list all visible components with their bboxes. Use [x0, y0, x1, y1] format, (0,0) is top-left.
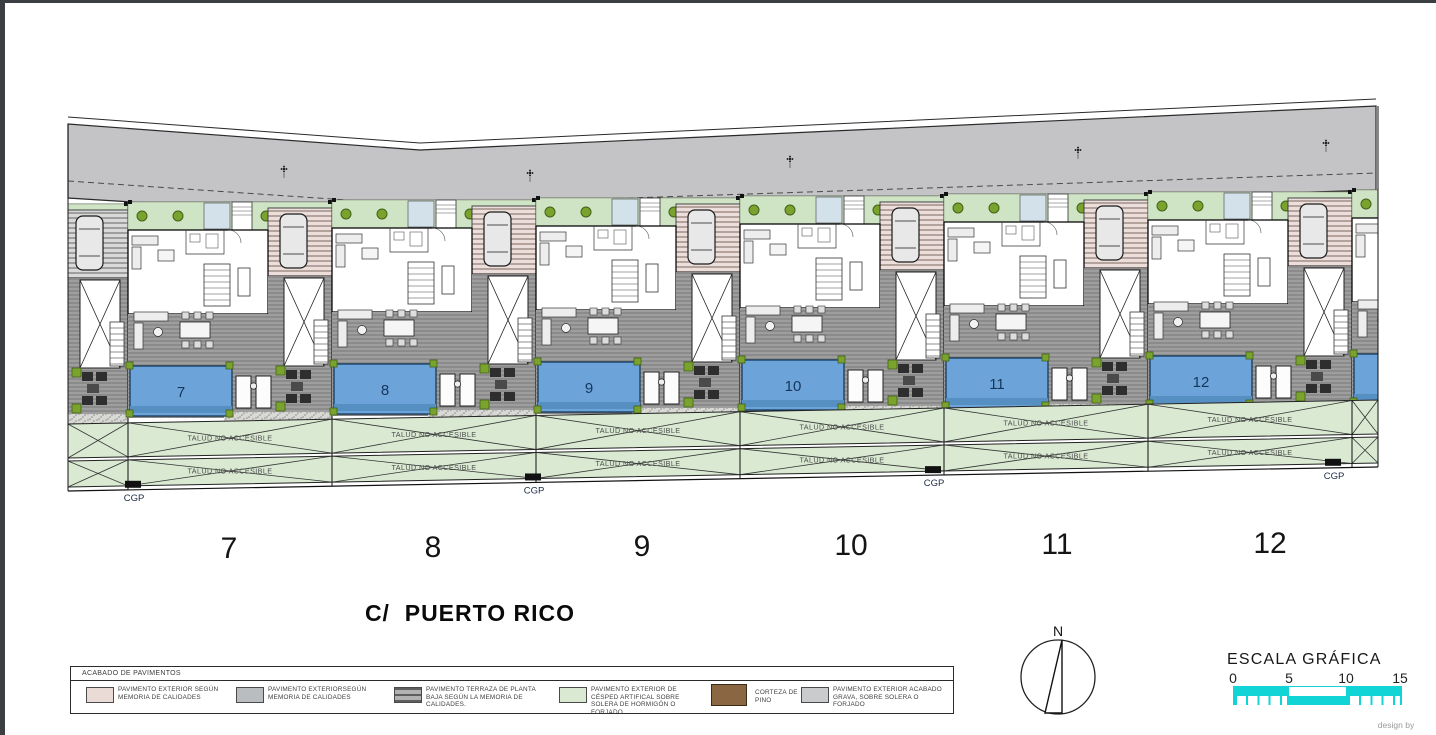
stairs [1224, 254, 1250, 296]
pool-number: 11 [989, 376, 1005, 393]
kitchen-island [1258, 258, 1270, 286]
outdoor-dining-set [1404, 300, 1436, 336]
bush [377, 209, 387, 219]
legend-box: ACABADO DE PAVIMENTOS PAVIMENTO EXTERIOR… [70, 666, 954, 714]
sofa [336, 234, 362, 243]
plot-number-8: 8 [425, 531, 442, 565]
side-stairs [722, 316, 736, 360]
coffee-table [1178, 240, 1194, 251]
stairs [204, 264, 230, 306]
scale-bar-segment [1289, 686, 1346, 696]
scale-tick-15: 15 [1392, 670, 1408, 686]
plot-10: 10 [738, 194, 944, 422]
coffee-table [1382, 238, 1398, 249]
planter [22, 412, 29, 419]
bush [341, 209, 351, 219]
planter [226, 362, 233, 369]
planter [534, 358, 541, 365]
plot-number-7: 7 [221, 532, 238, 566]
talud-label: TALUD NO ACCESIBLE [800, 422, 885, 431]
bush [785, 205, 795, 215]
talud-label: TALUD NO ACCESIBLE [1004, 452, 1089, 461]
pool-11: 11 [946, 358, 1048, 408]
sun-loungers [32, 378, 67, 410]
car [1096, 206, 1123, 260]
talud-label: TALUD NO ACCESIBLE [188, 434, 273, 443]
entry-porch [612, 199, 638, 225]
entry-porch [408, 201, 434, 227]
compass-needle [1045, 640, 1062, 713]
bush [545, 207, 555, 217]
north-label: N [1053, 623, 1063, 639]
bush [137, 211, 147, 221]
planter [1246, 352, 1253, 359]
north-arrow: N [1016, 620, 1100, 720]
entry-walkway [232, 202, 252, 230]
planter [738, 404, 745, 411]
site-plan-drawing: 789101112TALUD NO ACCESIBLETALUD NO ACCE… [0, 0, 1436, 735]
talud-label: TALUD NO ACCESIBLE [1208, 448, 1293, 457]
window-edge-left [0, 0, 5, 735]
legend-item-label: PAVIMENTO EXTERIORSEGÚN MEMORIA DE CALID… [268, 686, 382, 701]
pool-number: 12 [1193, 374, 1210, 391]
planter [634, 406, 641, 413]
house-floorplan [536, 226, 676, 310]
sofa [1152, 226, 1178, 235]
pool-number: 10 [785, 378, 802, 395]
planter [430, 408, 437, 415]
planter [1146, 352, 1153, 359]
kitchen-island [34, 270, 46, 298]
bush [57, 213, 67, 223]
entry-porch [1428, 191, 1436, 217]
legend-swatch-pink [86, 687, 114, 703]
pool [1354, 354, 1436, 404]
legend-item-label: PAVIMENTO TERRAZA DE PLANTA BAJA SEGÚN L… [426, 686, 540, 709]
talud-label: TALUD NO ACCESIBLE [596, 426, 681, 435]
scale-bar-title: ESCALA GRÁFICA [1227, 651, 1382, 669]
plot-number-9: 9 [634, 530, 651, 564]
house-floorplan [1148, 220, 1288, 304]
talud-label: TALUD NO ACCESIBLE [1004, 419, 1089, 428]
bush [989, 203, 999, 213]
legend-swatch-green [559, 687, 587, 703]
stairs [816, 258, 842, 300]
plot-11: 11 [942, 192, 1148, 420]
side-stairs [518, 318, 532, 362]
sofa [540, 232, 566, 241]
entry-walkway [28, 204, 48, 232]
house-floorplan [0, 232, 64, 316]
legend-item-label: PAVIMENTO EXTERIOR SEGÚN MEMORIA DE CALI… [118, 686, 232, 701]
legend-title: ACABADO DE PAVIMENTOS [82, 670, 181, 677]
entry-walkway [1048, 194, 1068, 222]
stairs [612, 260, 638, 302]
car [892, 208, 919, 262]
planter [942, 354, 949, 361]
bush [173, 211, 183, 221]
planter [330, 408, 337, 415]
plot-number-12: 12 [1253, 527, 1286, 561]
plot-7: 7 [126, 200, 332, 428]
planter [330, 360, 337, 367]
svg-text:CGP: CGP [924, 478, 945, 489]
pool-9: 9 [538, 362, 640, 412]
legend-swatch-brown [711, 684, 747, 706]
pool-number: 7 [177, 384, 185, 401]
planter [738, 356, 745, 363]
kitchen-island [850, 262, 862, 290]
car [76, 216, 103, 270]
bush [1397, 199, 1407, 209]
sofa [948, 228, 974, 237]
street-name-label: C/ PUERTO RICO [365, 600, 575, 627]
side-stairs [1334, 310, 1348, 354]
planter [226, 410, 233, 417]
bush [953, 203, 963, 213]
outdoor-dining-set [588, 308, 621, 344]
talud-label: TALUD NO ACCESIBLE [188, 467, 273, 476]
talud-label: TALUD NO ACCESIBLE [1208, 415, 1293, 424]
pool-7: 7 [130, 366, 232, 416]
svg-text:CGP: CGP [1324, 471, 1345, 482]
side-stairs [926, 314, 940, 358]
house-floorplan [1352, 218, 1436, 302]
legend-swatch-striped [394, 687, 422, 703]
stairs [1020, 256, 1046, 298]
house-floorplan [740, 224, 880, 308]
entry-walkway [844, 196, 864, 224]
planter [126, 362, 133, 369]
design-credit: design by [1378, 720, 1414, 730]
stairs [1428, 252, 1436, 294]
planter [22, 364, 29, 371]
kitchen-island [442, 266, 454, 294]
house-floorplan [128, 230, 268, 314]
car [280, 214, 307, 268]
side-stairs [1130, 312, 1144, 356]
bush [1361, 199, 1371, 209]
coffee-table [974, 242, 990, 253]
legend-swatch-gray [236, 687, 264, 703]
kitchen-island [238, 268, 250, 296]
bush [1193, 201, 1203, 211]
house-floorplan [332, 228, 472, 312]
planter [1042, 354, 1049, 361]
side-stairs [314, 320, 328, 364]
sofa [132, 236, 158, 245]
planter [126, 410, 133, 417]
entry-porch [1224, 193, 1250, 219]
svg-text:CGP: CGP [124, 493, 145, 504]
car [484, 212, 511, 266]
entry-porch [204, 203, 230, 229]
pool-8: 8 [334, 364, 436, 414]
plots-band: 789101112 [0, 188, 1436, 430]
outdoor-dining-set [996, 304, 1029, 340]
plot-8: 8 [330, 198, 536, 426]
plot-9: 9 [534, 196, 740, 424]
outdoor-dining-set [180, 312, 213, 348]
outdoor-dining-set [1200, 302, 1233, 338]
car [688, 210, 715, 264]
window-edge-top [0, 0, 1436, 3]
scale-tick-10: 10 [1338, 670, 1354, 686]
talud-label: TALUD NO ACCESIBLE [392, 463, 477, 472]
bush [29, 213, 39, 223]
entry-walkway [1252, 192, 1272, 220]
car [1300, 204, 1327, 258]
plot-number-11: 11 [1041, 528, 1072, 562]
coffee-table [362, 248, 378, 259]
bush [581, 207, 591, 217]
scale-bar-segment [1346, 696, 1402, 705]
entry-walkway [640, 198, 660, 226]
pool-number: 8 [381, 382, 389, 399]
scale-bar-segment [1233, 686, 1289, 696]
legend-item-label: PAVIMENTO EXTERIOR DE CÉSPED ARTIFICAL S… [591, 686, 705, 717]
scale-bar-segment [1289, 696, 1346, 705]
scale-bar-segment [1233, 696, 1289, 705]
bush [749, 205, 759, 215]
planter [534, 406, 541, 413]
outdoor-dining-set [792, 306, 825, 342]
legend-swatch-lightgray [801, 687, 829, 703]
legend-item-label: PAVIMENTO EXTERIOR ACABADO GRAVA, SOBRE … [833, 686, 947, 709]
side-stairs [110, 322, 124, 366]
outdoor-dining-set [384, 310, 417, 346]
scale-bar-segment [1346, 686, 1402, 696]
house-floorplan [944, 222, 1084, 306]
sofa [744, 230, 770, 239]
coffee-table [566, 246, 582, 257]
scale-tick-5: 5 [1285, 670, 1293, 686]
entry-porch [1020, 195, 1046, 221]
plot-partial [0, 202, 128, 430]
coffee-table [158, 250, 174, 261]
scale-tick-0: 0 [1229, 670, 1237, 686]
planter [838, 356, 845, 363]
pool-10: 10 [742, 360, 844, 410]
bush [1157, 201, 1167, 211]
planter [634, 358, 641, 365]
plot-12: 12 [1146, 190, 1352, 418]
stairs [408, 262, 434, 304]
plan-sheet: 789101112TALUD NO ACCESIBLETALUD NO ACCE… [0, 0, 1436, 735]
planter [430, 360, 437, 367]
plot-number-10: 10 [834, 529, 867, 563]
plot-partial [1350, 188, 1436, 416]
kitchen-island [646, 264, 658, 292]
talud-label: TALUD NO ACCESIBLE [392, 430, 477, 439]
pool-12: 12 [1150, 356, 1252, 406]
entry-walkway [436, 200, 456, 228]
pool-number: 9 [585, 380, 593, 397]
coffee-table [770, 244, 786, 255]
planter [1350, 350, 1357, 357]
talud-label: TALUD NO ACCESIBLE [800, 455, 885, 464]
svg-text:CGP: CGP [524, 485, 545, 496]
talud-label: TALUD NO ACCESIBLE [596, 459, 681, 468]
legend-title-rule [71, 680, 953, 681]
kitchen-island [1054, 260, 1066, 288]
entry-porch [816, 197, 842, 223]
